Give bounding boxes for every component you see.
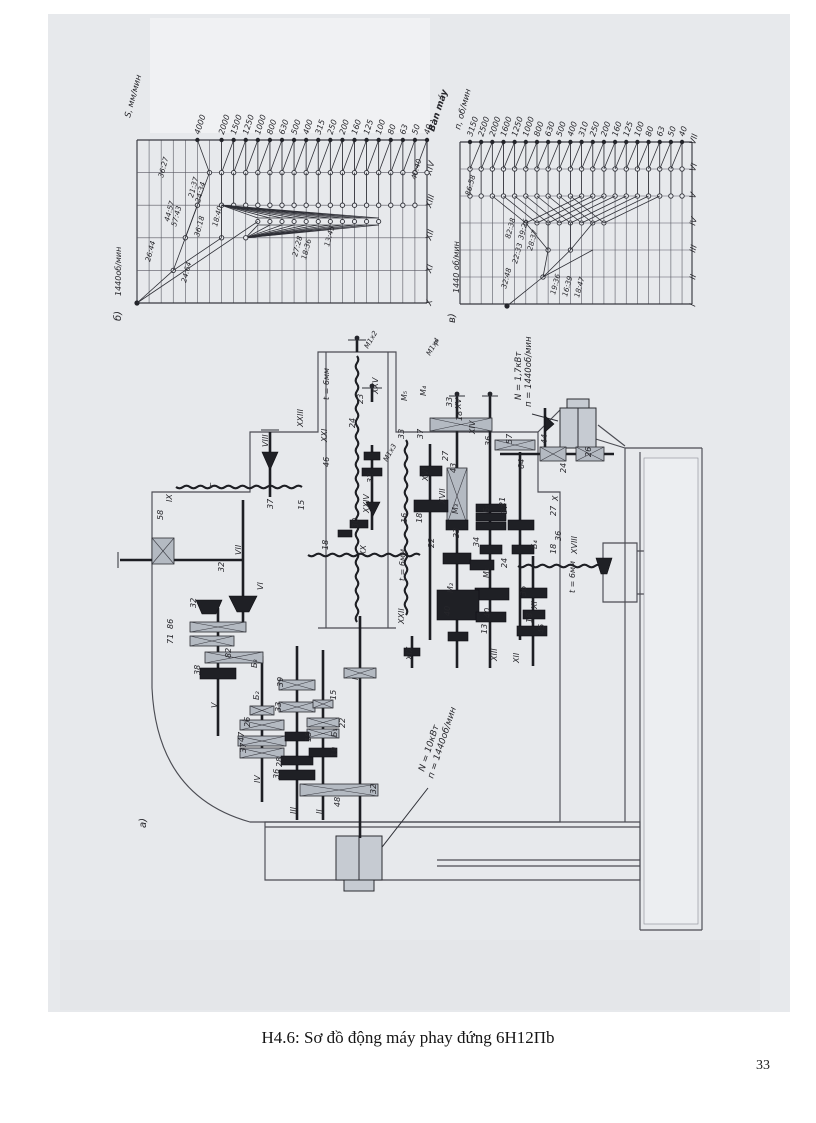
- diagram-label: 34: [472, 537, 481, 547]
- chart-node: [328, 219, 332, 223]
- diagram-label: Б₅: [482, 504, 491, 513]
- diagram-label: 40: [443, 606, 452, 616]
- chart-node: [304, 219, 308, 223]
- chart-node: [280, 219, 284, 223]
- chart-node: [340, 219, 344, 223]
- diagram-label: XVII: [438, 488, 447, 505]
- chart-node: [304, 203, 308, 207]
- diagram-label: 46: [322, 457, 331, 467]
- chart-node: [479, 167, 483, 171]
- diagram-label: II: [315, 809, 324, 814]
- diagram-label: 27: [441, 450, 450, 461]
- diagram-label: 36: [484, 436, 493, 446]
- diagram-label: 18: [455, 411, 464, 421]
- diagram-label: XX: [359, 545, 368, 557]
- chart-node: [316, 203, 320, 207]
- diagram-label: Б₁: [330, 728, 339, 737]
- chart-node: [364, 219, 368, 223]
- chart-node: [512, 140, 516, 144]
- chart-node: [244, 138, 248, 142]
- diagram-label: М₂: [446, 582, 455, 593]
- diagram-label: а): [138, 818, 149, 828]
- chart-node: [669, 194, 673, 198]
- diagram-label: XXIV: [362, 494, 371, 514]
- diagram-label: 32: [369, 784, 378, 794]
- diagram-label: 44: [540, 434, 549, 444]
- diagram-label: 30: [351, 518, 360, 528]
- diagram-label: 16: [400, 513, 409, 523]
- chart-node: [364, 138, 368, 142]
- chart-node: [501, 167, 505, 171]
- chart-node: [568, 140, 572, 144]
- diagram-label: XII: [512, 652, 521, 664]
- chart-node: [425, 170, 429, 174]
- chart-node: [602, 140, 606, 144]
- chart-node: [579, 140, 583, 144]
- chart-node: [328, 138, 332, 142]
- chart-node: [613, 140, 617, 144]
- diagram-label: 86: [166, 619, 175, 629]
- source-label: 1440 об/мин: [452, 241, 461, 293]
- chart-node: [376, 203, 380, 207]
- diagram-label: VI: [256, 582, 265, 590]
- chart-node: [280, 138, 284, 142]
- diagram-label: 82: [224, 648, 233, 658]
- gear: [475, 588, 509, 600]
- diagram-label: XIII: [490, 648, 499, 662]
- chart-node: [557, 140, 561, 144]
- diagram-label: 71: [166, 634, 175, 644]
- diagram-label: 64: [517, 459, 526, 469]
- chart-node: [376, 138, 380, 142]
- scan-shade-patch: [60, 940, 760, 1010]
- chart-node: [256, 138, 260, 142]
- diagram-label: XV: [454, 398, 463, 410]
- chart-node: [479, 194, 483, 198]
- chart-node: [352, 219, 356, 223]
- chart-node: [364, 203, 368, 207]
- gear: [443, 553, 471, 564]
- diagram-label: VIII: [261, 434, 270, 447]
- chart-node: [680, 167, 684, 171]
- diagram-label: t = 6мм: [322, 368, 331, 400]
- diagram-label: VII: [234, 544, 243, 555]
- diagram-label: XVIII: [570, 535, 579, 555]
- diagram-label: 57: [505, 433, 514, 444]
- chart-node: [680, 140, 684, 144]
- diagram-label: XI: [530, 601, 539, 610]
- gear: [364, 452, 380, 460]
- chart-node: [268, 203, 272, 207]
- chart-node: [352, 138, 356, 142]
- chart-node: [624, 140, 628, 144]
- diagram-label: XVI: [421, 467, 430, 482]
- diagram-label: М₃: [451, 504, 460, 514]
- source-label: 1440об/мин: [114, 247, 123, 296]
- chart-node: [635, 140, 639, 144]
- diagram-label: IV: [253, 775, 262, 783]
- diagram-label: Б₃: [250, 659, 259, 668]
- diagram-label: 37: [266, 498, 275, 509]
- chart-node: [352, 203, 356, 207]
- gear: [448, 632, 468, 641]
- diagram-label: 18: [304, 732, 313, 742]
- diagram-label: XXIII: [296, 408, 305, 428]
- chart-node: [292, 219, 296, 223]
- diagram-label: 33: [452, 528, 461, 538]
- chart-node: [292, 203, 296, 207]
- diagram-label: 36: [272, 769, 281, 779]
- gear: [338, 530, 352, 537]
- chart-node: [468, 140, 472, 144]
- diagram-label: 43: [449, 463, 458, 473]
- diagram-label: XIV: [468, 420, 477, 435]
- diagram-label: 33: [397, 429, 406, 439]
- diagram-label: 37: [416, 428, 425, 439]
- chart-node: [535, 140, 539, 144]
- chart-node: [490, 140, 494, 144]
- diagram-label: 58: [156, 510, 165, 520]
- diagram-label: М₅: [400, 391, 409, 401]
- diagram-label: 13: [480, 624, 489, 634]
- chart-node: [377, 219, 381, 223]
- diagram-label: X: [551, 495, 560, 502]
- diagram-label: 24: [500, 558, 509, 568]
- diagram-label: 24: [559, 463, 568, 473]
- chart-node: [479, 140, 483, 144]
- chart-node: [658, 140, 662, 144]
- diagram-label: Б₂: [252, 691, 261, 700]
- diagram-label: 26: [584, 447, 593, 457]
- diagram-label: 23: [356, 394, 365, 404]
- feed-motor-cap: [567, 399, 589, 408]
- column-face: [644, 458, 698, 924]
- diagram-label: XXI: [320, 428, 329, 443]
- gear: [279, 770, 315, 780]
- chart-node: [316, 219, 320, 223]
- chart-node: [524, 140, 528, 144]
- chart-node: [280, 203, 284, 207]
- diagram-label: 22: [338, 718, 347, 728]
- diagram-label: 24: [348, 418, 357, 428]
- diagram-label: 32: [189, 598, 198, 608]
- diagram-label: 37: [500, 503, 509, 514]
- diagram-label: N = 1,7кВт: [514, 351, 524, 400]
- diagram-label: 28: [275, 757, 284, 767]
- chart-node: [646, 140, 650, 144]
- chart-node: [340, 203, 344, 207]
- diagram-label: 38: [193, 665, 202, 675]
- diagram-label: 19: [330, 747, 339, 757]
- chart-node: [304, 138, 308, 142]
- diagram-label: 32: [217, 562, 226, 572]
- chart-node: [401, 203, 405, 207]
- chart-node: [219, 138, 223, 142]
- diagram-label: XIX: [405, 646, 414, 661]
- diagram-label: 18: [525, 613, 534, 623]
- diagram-label: 33: [274, 702, 283, 712]
- chart-node: [401, 138, 405, 142]
- chart-node: [669, 140, 673, 144]
- scan-light-patch: [150, 18, 430, 133]
- chart-node: [268, 219, 272, 223]
- chart-node: [546, 140, 550, 144]
- figure-part-label: б): [112, 311, 124, 321]
- chart-node: [231, 138, 235, 142]
- figure-caption: H4.6: Sơ đồ động máy phay đứng 6H12Пb: [0, 1028, 816, 1048]
- diagram-label: 48: [333, 797, 342, 807]
- gear: [508, 520, 534, 530]
- chart-node: [256, 203, 260, 207]
- diagram-label: Б₄: [530, 540, 539, 549]
- diagram-label: 36: [554, 531, 563, 541]
- diagram-label: 27: [549, 505, 558, 516]
- diagram-label: 18: [415, 513, 424, 523]
- diagram-label: 18: [549, 544, 558, 554]
- diagram-label: t = 6мм: [398, 549, 407, 581]
- chart-node: [413, 203, 417, 207]
- diagram-label: XXV: [371, 377, 380, 395]
- gear: [476, 522, 506, 530]
- diagram-label: М₄: [419, 385, 428, 396]
- diagram-label: 47: [237, 731, 246, 742]
- diagram-label: 15: [297, 500, 306, 510]
- diagram-label: 33: [445, 397, 454, 407]
- figure-part-label: в): [447, 313, 458, 323]
- diagram-label: V: [210, 702, 219, 708]
- diagram-label: XXII: [397, 608, 406, 625]
- diagram-label: п = 1440об/мин: [524, 336, 534, 407]
- gear: [200, 668, 236, 679]
- chart-node: [389, 138, 393, 142]
- diagram-label: 36: [519, 586, 528, 596]
- chart-node: [328, 203, 332, 207]
- chart-node: [591, 140, 595, 144]
- gear: [480, 545, 502, 554]
- chart-node: [413, 138, 417, 142]
- diagram-label: 45: [537, 624, 546, 634]
- diagram-label: 18: [321, 540, 330, 550]
- chart-node: [244, 236, 248, 240]
- diagram-label: 39: [276, 677, 285, 687]
- diagram-label: t = 6мм: [568, 561, 577, 593]
- figure-scan: 4000200015001250100080063050040031525020…: [0, 0, 816, 1123]
- diagram-label: 15: [329, 690, 338, 700]
- diagram-label: 37: [239, 742, 248, 753]
- chart-node: [340, 138, 344, 142]
- diagram-label: 40: [483, 608, 492, 618]
- diagram-label: 26: [243, 717, 252, 727]
- diagram-label: IX: [165, 494, 174, 502]
- diagram-label: 32: [366, 473, 375, 483]
- chart-node: [680, 194, 684, 198]
- chart-node: [389, 203, 393, 207]
- main-motor-foot: [344, 880, 374, 891]
- chart-node: [501, 140, 505, 144]
- diagram-label: М₁: [482, 568, 491, 578]
- gear: [281, 756, 313, 765]
- chart-node: [292, 138, 296, 142]
- diagram-label: III: [289, 806, 298, 814]
- chart-node: [316, 138, 320, 142]
- page-number: 33: [756, 1058, 770, 1074]
- chart-node: [425, 138, 429, 142]
- diagram-label: 22: [427, 538, 436, 548]
- chart-node: [268, 138, 272, 142]
- scanned-book-page: { "page": { "caption": "H4.6: Sơ đồ động…: [0, 0, 816, 1123]
